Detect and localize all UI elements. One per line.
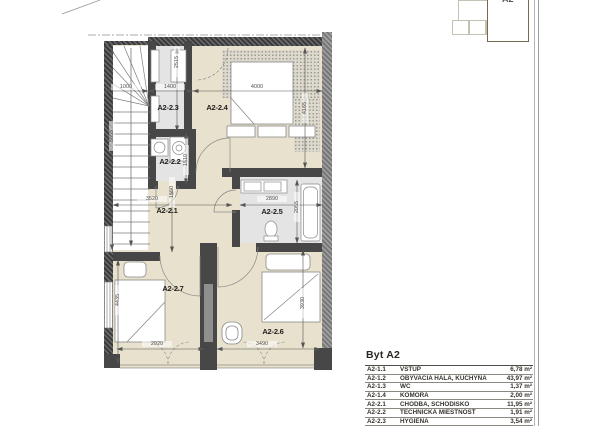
- key-plan-cell: [452, 20, 469, 35]
- bed-a2-2-6: [262, 254, 320, 322]
- legend-room-area: 43,97 m²: [490, 375, 533, 382]
- legend-room-name: VSTUP: [400, 366, 490, 373]
- legend-row: A2-2.1 CHODBA, SCHODISKO 11,95 m²: [365, 400, 533, 409]
- page-separator-line: [538, 0, 539, 426]
- legend-title: Byt A2: [366, 349, 533, 361]
- legend-room-name: HYGIENA: [400, 418, 490, 425]
- dim-label: 4165: [302, 93, 308, 123]
- legend-room-code: A2-2.3: [365, 418, 400, 425]
- room-label-a2-2-7: A2-2.7: [151, 284, 195, 293]
- armchair-a2-2-6: [222, 322, 242, 344]
- window-glazing-bottom: [120, 365, 314, 368]
- window-left-wall: [105, 226, 113, 328]
- legend-room-area: 1,37 m²: [490, 383, 533, 390]
- dim-label: 2890: [257, 196, 287, 202]
- key-plan: A2: [445, 0, 545, 55]
- toilet-icon: [265, 221, 277, 237]
- dim-label: 2055: [294, 192, 300, 222]
- legend-room-name: TECHNICKÁ MIESTNOSŤ: [400, 409, 490, 416]
- key-plan-unit-label: A2: [502, 0, 514, 4]
- legend-room-name: WC: [400, 383, 490, 390]
- dim-label: 2515: [174, 47, 180, 77]
- dim-label: 4435: [115, 285, 121, 315]
- legend-room-name: OBÝVACIA HALA, KUCHYŇA: [400, 375, 490, 382]
- room-label-a2-2-6: A2-2.6: [251, 327, 295, 336]
- bed-a2-2-7: [115, 262, 165, 342]
- room-label-a2-2-2: A2-2.2: [148, 157, 192, 166]
- legend-room-code: A2-1.1: [365, 366, 400, 373]
- dim-label: 2920: [142, 341, 172, 347]
- legend-room-name: KOMORA: [400, 392, 490, 399]
- legend-row: A2-1.3 WC 1,37 m²: [365, 383, 533, 392]
- dim-label: 3930: [300, 288, 306, 318]
- legend-row: A2-1.2 OBÝVACIA HALA, KUCHYŇA 43,97 m²: [365, 375, 533, 384]
- legend-rows: A2-1.1 VSTUP 6,78 m² A2-1.2 OBÝVACIA HAL…: [365, 365, 533, 426]
- dim-label: 1400: [155, 84, 185, 90]
- legend-table: Byt A2 A2-1.1 VSTUP 6,78 m² A2-1.2 OBÝVA…: [365, 347, 533, 426]
- legend-room-area: 1,91 m²: [490, 409, 533, 416]
- room-label-a2-2-1: A2-2.1: [145, 206, 189, 215]
- roof-projection-lines: [62, 0, 330, 35]
- legend-room-area: 2,00 m²: [490, 392, 533, 399]
- legend-room-name: CHODBA, SCHODISKO: [400, 401, 490, 408]
- room-label-a2-2-5: A2-2.5: [250, 207, 294, 216]
- legend-room-area: 11,95 m²: [490, 401, 533, 408]
- key-plan-cell: [469, 20, 486, 35]
- legend-room-code: A2-1.4: [365, 392, 400, 399]
- legend-room-code: A2-2.2: [365, 409, 400, 416]
- legend-row: A2-1.4 KOMORA 2,00 m²: [365, 392, 533, 401]
- room-label-a2-2-4: A2-2.4: [195, 103, 239, 112]
- legend-room-code: A2-1.2: [365, 375, 400, 382]
- legend-row: A2-2.3 HYGIENA 3,54 m²: [365, 418, 533, 426]
- legend-row: A2-2.2 TECHNICKÁ MIESTNOSŤ 1,91 m²: [365, 409, 533, 418]
- legend-row: A2-1.1 VSTUP 6,78 m²: [365, 366, 533, 375]
- staircase: [113, 46, 150, 246]
- dim-label: 3490: [247, 341, 277, 347]
- key-plan-highlighted-unit: A2: [487, 0, 529, 42]
- dim-label: 4000: [242, 84, 272, 90]
- dim-label: 3520: [137, 196, 167, 202]
- legend-room-code: A2-2.1: [365, 401, 400, 408]
- page-separator-line: [534, 0, 535, 426]
- legend-room-area: 3,54 m²: [490, 418, 533, 425]
- room-label-a2-2-3: A2-2.3: [146, 103, 190, 112]
- dim-label: 1550: [169, 177, 175, 207]
- dim-label: 1000: [111, 84, 141, 90]
- dim-label: 5855: [109, 121, 115, 151]
- floor-plan-page: { "key_plan": { "unit_label": "A2" }, "p…: [0, 0, 600, 426]
- legend-room-code: A2-1.3: [365, 383, 400, 390]
- legend-room-area: 6,78 m²: [490, 366, 533, 373]
